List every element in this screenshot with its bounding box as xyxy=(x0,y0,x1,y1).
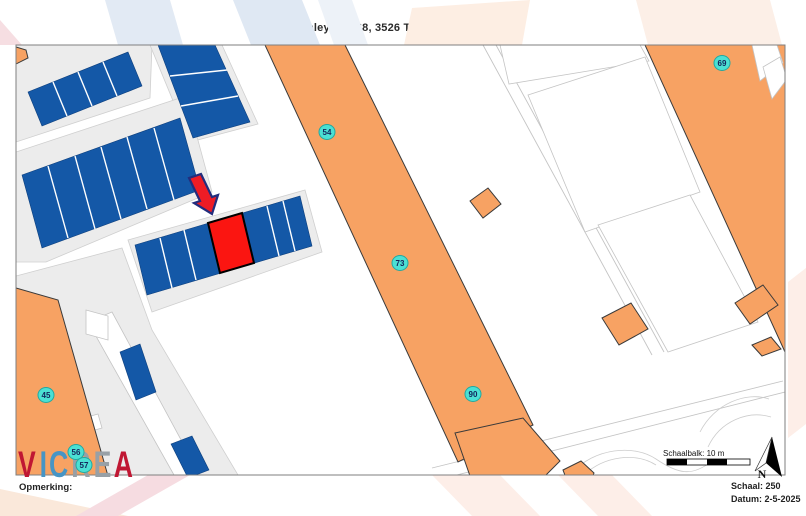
house-label-73: 73 xyxy=(392,256,408,271)
house-label-90: 90 xyxy=(465,387,481,402)
svg-text:69: 69 xyxy=(718,59,727,68)
remark-label: Opmerking: xyxy=(19,482,72,493)
svg-text:54: 54 xyxy=(323,128,332,137)
svg-text:90: 90 xyxy=(469,390,478,399)
scale-bar-label: Schaalbalk: 10 m xyxy=(663,449,725,458)
house-label-54: 54 xyxy=(319,125,335,140)
house-label-56: 56 xyxy=(68,445,84,460)
house-label-45: 45 xyxy=(38,388,54,403)
house-label-57: 57 xyxy=(76,458,92,473)
logo-letter-v: V xyxy=(18,444,36,485)
logo-letter-e: E xyxy=(94,444,112,485)
logo-letter-a: A xyxy=(114,444,133,485)
svg-text:73: 73 xyxy=(396,259,405,268)
map-canvas: Schaalbalk: 10 m N V I C R E A 54 xyxy=(0,0,806,516)
svg-text:57: 57 xyxy=(80,461,89,470)
svg-text:56: 56 xyxy=(72,448,81,457)
north-label: N xyxy=(758,467,767,481)
logo-letter-c: C xyxy=(49,444,68,485)
svg-text:45: 45 xyxy=(42,391,51,400)
scale-text: Schaal: 250 xyxy=(731,481,781,491)
logo-letter-i: I xyxy=(40,444,47,485)
date-text: Datum: 2-5-2025 xyxy=(731,494,801,504)
house-label-69: 69 xyxy=(714,56,730,71)
map-report-page: Stanleylaan 68, 3526 TM Utrecht 30199849 xyxy=(0,0,806,516)
